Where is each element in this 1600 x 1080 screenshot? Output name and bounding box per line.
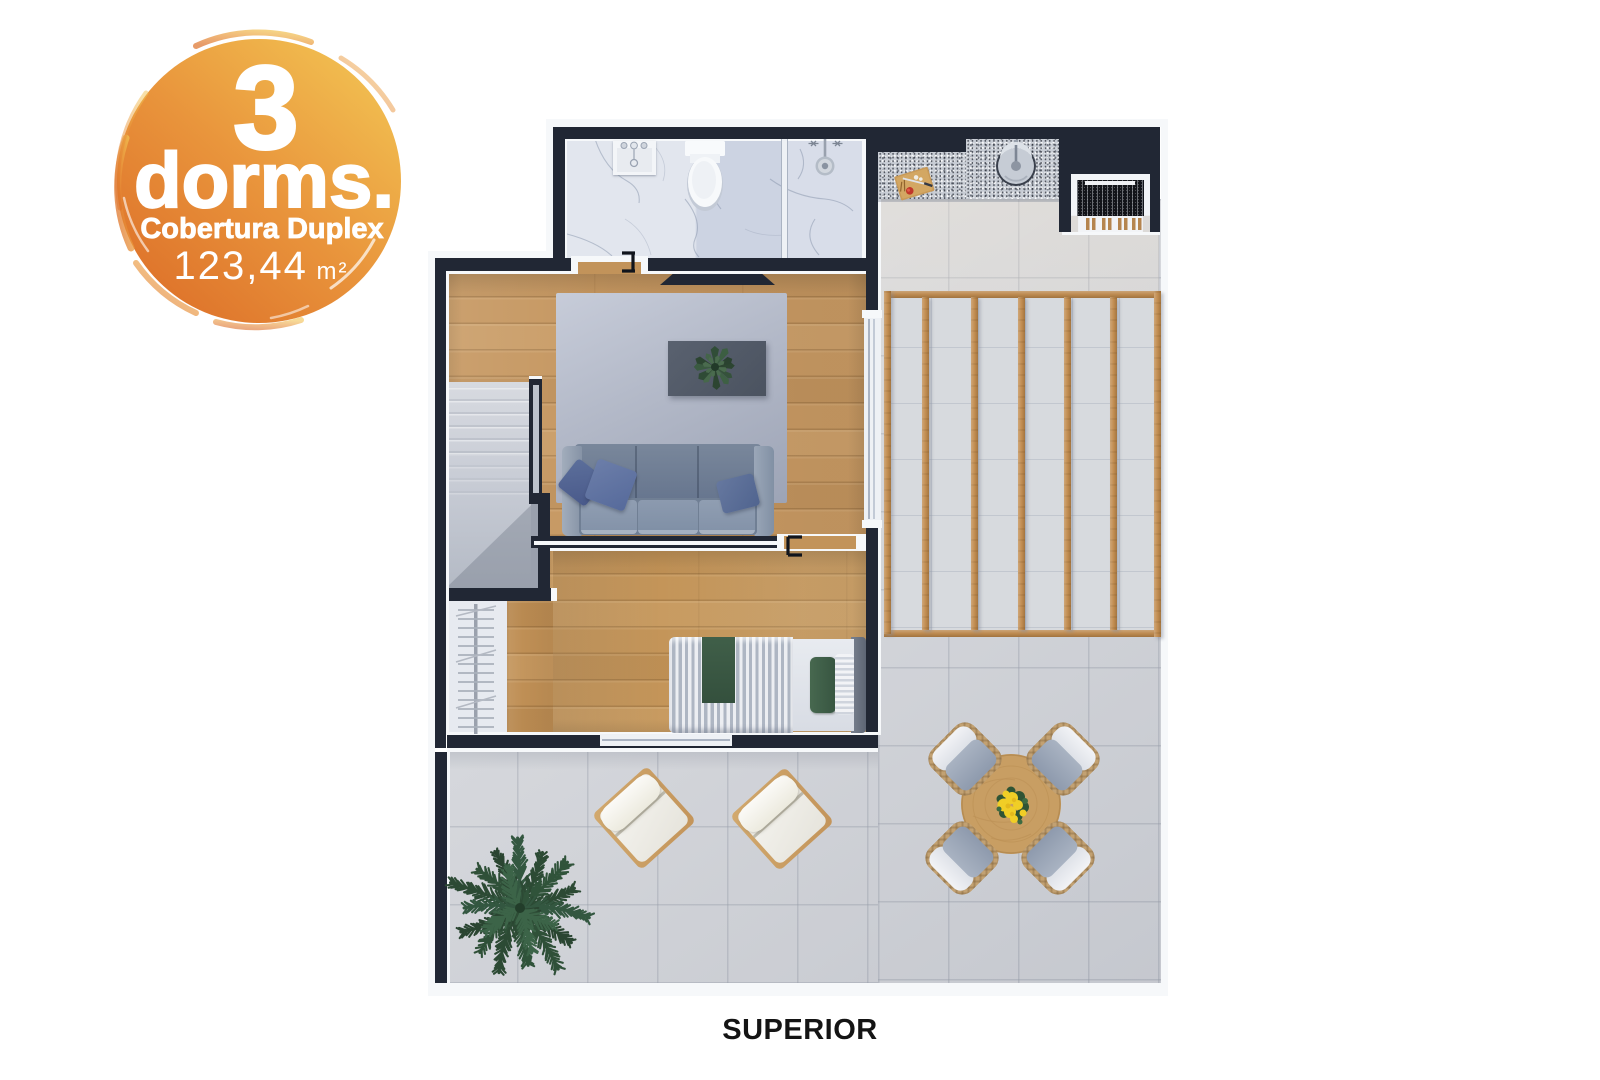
svg-text:dorms.: dorms. xyxy=(134,136,394,224)
svg-text:Cobertura Duplex: Cobertura Duplex xyxy=(140,213,383,245)
